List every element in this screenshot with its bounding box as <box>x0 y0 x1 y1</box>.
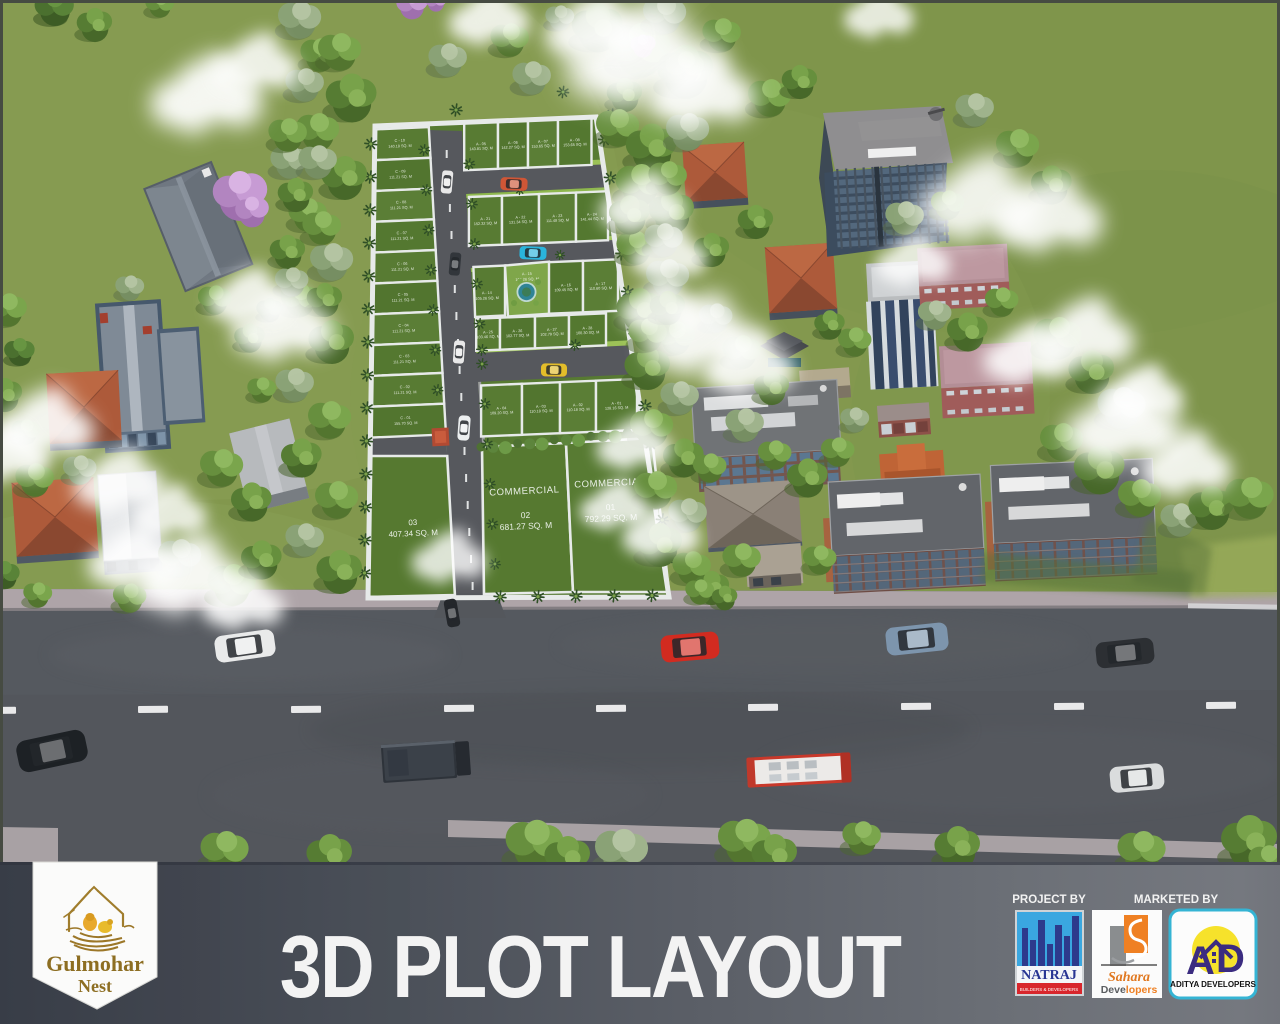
svg-text:ADITYA DEVELOPERS: ADITYA DEVELOPERS <box>1170 980 1256 989</box>
svg-text:C - 07: C - 07 <box>396 231 407 235</box>
svg-text:A - 14: A - 14 <box>482 291 492 295</box>
svg-text:C - 04: C - 04 <box>398 323 409 327</box>
svg-text:3D PLOT LAYOUT: 3D PLOT LAYOUT <box>280 919 902 1017</box>
svg-text:C - 05: C - 05 <box>398 293 409 297</box>
svg-text:PROJECT BY: PROJECT BY <box>1012 894 1086 906</box>
svg-text:C - 01: C - 01 <box>400 416 411 420</box>
svg-text:Gulmohar: Gulmohar <box>46 951 144 976</box>
svg-text:MARKETED BY: MARKETED BY <box>1134 894 1219 906</box>
svg-text:NATRAJ: NATRAJ <box>1021 968 1077 983</box>
svg-text:Sahara: Sahara <box>1108 970 1150 985</box>
svg-text:C - 10: C - 10 <box>395 139 406 143</box>
svg-text:C - 02: C - 02 <box>400 385 411 389</box>
svg-text:Developers: Developers <box>1101 984 1158 996</box>
svg-text:BUILDERS & DEVELOPERS: BUILDERS & DEVELOPERS <box>1020 987 1079 992</box>
svg-text:Nest: Nest <box>78 976 112 996</box>
svg-text:C - 03: C - 03 <box>399 354 410 358</box>
svg-text:A - 15: A - 15 <box>522 272 532 276</box>
svg-text:C - 09: C - 09 <box>395 169 406 173</box>
svg-text:03: 03 <box>408 518 418 527</box>
svg-text:C - 08: C - 08 <box>396 200 407 204</box>
svg-text:C - 06: C - 06 <box>397 262 408 266</box>
svg-text:02: 02 <box>520 510 530 520</box>
